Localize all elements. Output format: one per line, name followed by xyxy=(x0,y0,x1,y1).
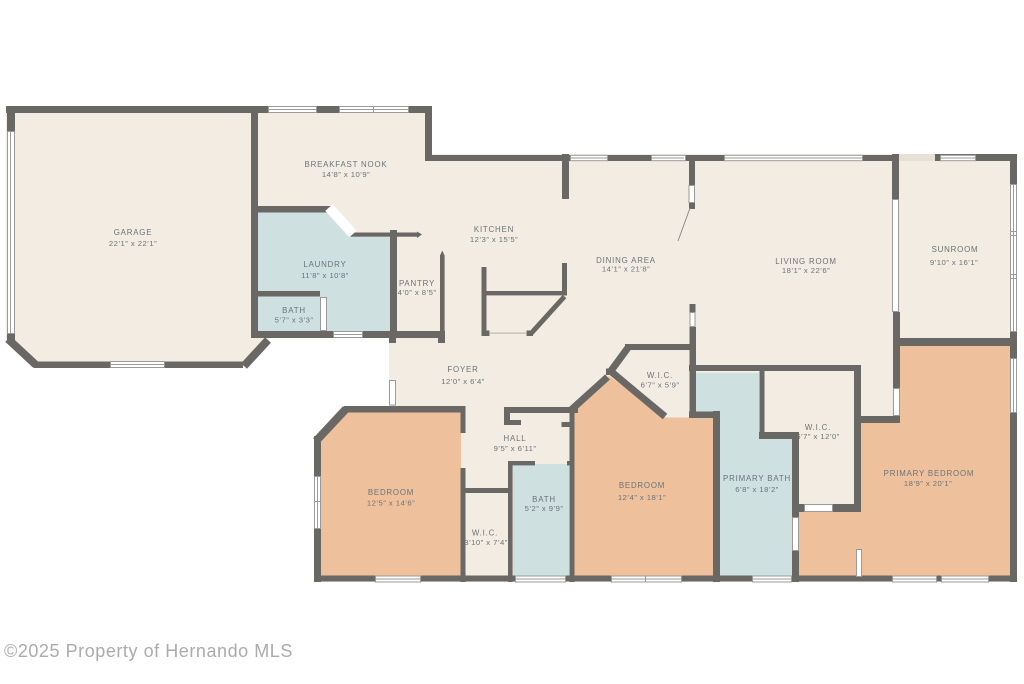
svg-text:12’3” x 15’5”: 12’3” x 15’5” xyxy=(470,235,518,244)
svg-text:22’1” x 22’1”: 22’1” x 22’1” xyxy=(109,239,157,248)
svg-text:14’8” x 10’9”: 14’8” x 10’9” xyxy=(322,170,370,179)
svg-text:12’0” x 6’4”: 12’0” x 6’4” xyxy=(441,377,484,386)
svg-text:12’5” x 14’6”: 12’5” x 14’6” xyxy=(367,499,415,508)
svg-text:BEDROOM: BEDROOM xyxy=(368,488,414,497)
svg-text:9’5” x 6’11”: 9’5” x 6’11” xyxy=(494,444,537,453)
svg-text:LAUNDRY: LAUNDRY xyxy=(303,260,346,269)
svg-text:KITCHEN: KITCHEN xyxy=(474,225,514,234)
svg-text:W.I.C.: W.I.C. xyxy=(805,423,831,432)
svg-text:©2025 Property of Hernando MLS: ©2025 Property of Hernando MLS xyxy=(4,641,293,661)
svg-text:9’10” x 16’1”: 9’10” x 16’1” xyxy=(930,258,978,267)
svg-text:18’9” x 20’1”: 18’9” x 20’1” xyxy=(904,479,952,488)
svg-text:SUNROOM: SUNROOM xyxy=(932,245,979,254)
svg-text:4’0” x 8’5”: 4’0” x 8’5” xyxy=(398,288,437,297)
svg-text:14’1” x 21’8”: 14’1” x 21’8” xyxy=(602,265,650,274)
svg-text:6’7” x 12’0”: 6’7” x 12’0” xyxy=(796,432,839,441)
svg-text:PRIMARY BEDROOM: PRIMARY BEDROOM xyxy=(884,469,975,478)
svg-text:12’4” x 18’1”: 12’4” x 18’1” xyxy=(618,493,666,502)
svg-text:6’7” x 5’9”: 6’7” x 5’9” xyxy=(641,381,680,390)
svg-text:BATH: BATH xyxy=(282,306,306,315)
svg-text:18’1” x 22’6”: 18’1” x 22’6” xyxy=(782,266,830,275)
svg-text:BEDROOM: BEDROOM xyxy=(619,481,665,490)
svg-text:LIVING ROOM: LIVING ROOM xyxy=(775,257,836,266)
svg-text:5’2” x 9’9”: 5’2” x 9’9” xyxy=(525,504,564,513)
svg-text:3’10” x 7’4”: 3’10” x 7’4” xyxy=(464,538,507,547)
svg-text:PRIMARY BATH: PRIMARY BATH xyxy=(723,474,791,483)
svg-text:PANTRY: PANTRY xyxy=(399,279,435,288)
svg-text:FOYER: FOYER xyxy=(447,365,478,374)
svg-text:11’8” x 10’8”: 11’8” x 10’8” xyxy=(301,271,349,280)
svg-text:5’7” x 3’3”: 5’7” x 3’3” xyxy=(275,316,314,325)
svg-text:W.I.C.: W.I.C. xyxy=(472,529,498,538)
svg-text:6’8” x 18’2”: 6’8” x 18’2” xyxy=(735,485,778,494)
svg-text:GARAGE: GARAGE xyxy=(114,228,153,237)
svg-text:HALL: HALL xyxy=(504,434,527,443)
svg-text:BREAKFAST NOOK: BREAKFAST NOOK xyxy=(305,160,388,169)
svg-text:BATH: BATH xyxy=(532,495,556,504)
svg-text:W.I.C.: W.I.C. xyxy=(647,371,673,380)
